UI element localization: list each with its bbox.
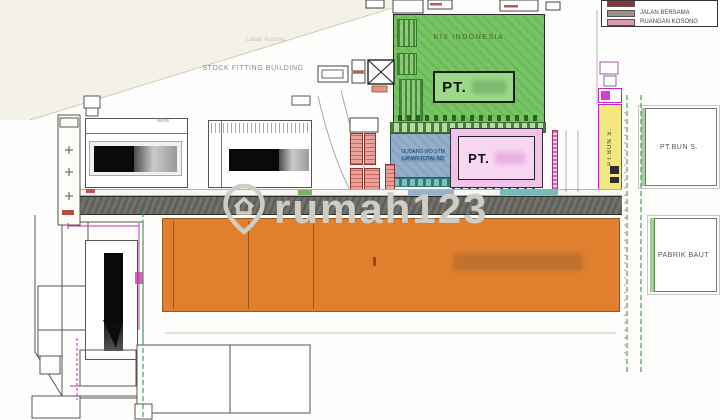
legend-swatch-gray [607,10,635,17]
legend-row [607,0,712,8]
legend-label: JALAN BERSAMA [640,10,690,16]
rumah123-watermark: rumah123 [222,183,488,235]
stock-fitting-label: STOCK FITTING BUILDING [196,65,310,73]
redaction-triangle [103,320,122,348]
bottom-left-outlines [32,215,310,419]
location-pin-house-icon [222,183,266,235]
mess-label: Mess [157,119,169,125]
legend-swatch-pink [607,19,635,26]
parcel-thin-lines [566,130,578,192]
magenta-dimension-lines [68,223,143,400]
map-legend: JALAN BERSAMA RUANGAN KOSONG [601,0,718,27]
lahan-kosong-label: Lahan Kosong [246,37,285,44]
water-tank-xbox [368,60,394,92]
legend-row: RUANGAN KOSONG [607,18,712,26]
legend-label: RUANGAN KOSONG [640,19,698,25]
top-edge-boxes [366,0,618,86]
legend-swatch-darkred [607,1,635,7]
site-plan: PT. GUDANG WD STM LAHAN TOTAL M2 PT. PT.… [0,0,720,420]
watermark-text: rumah123 [274,185,488,233]
ki3-indonesia-label: KI3 INDONESIA [398,34,540,42]
legend-row: JALAN BERSAMA [607,9,712,17]
